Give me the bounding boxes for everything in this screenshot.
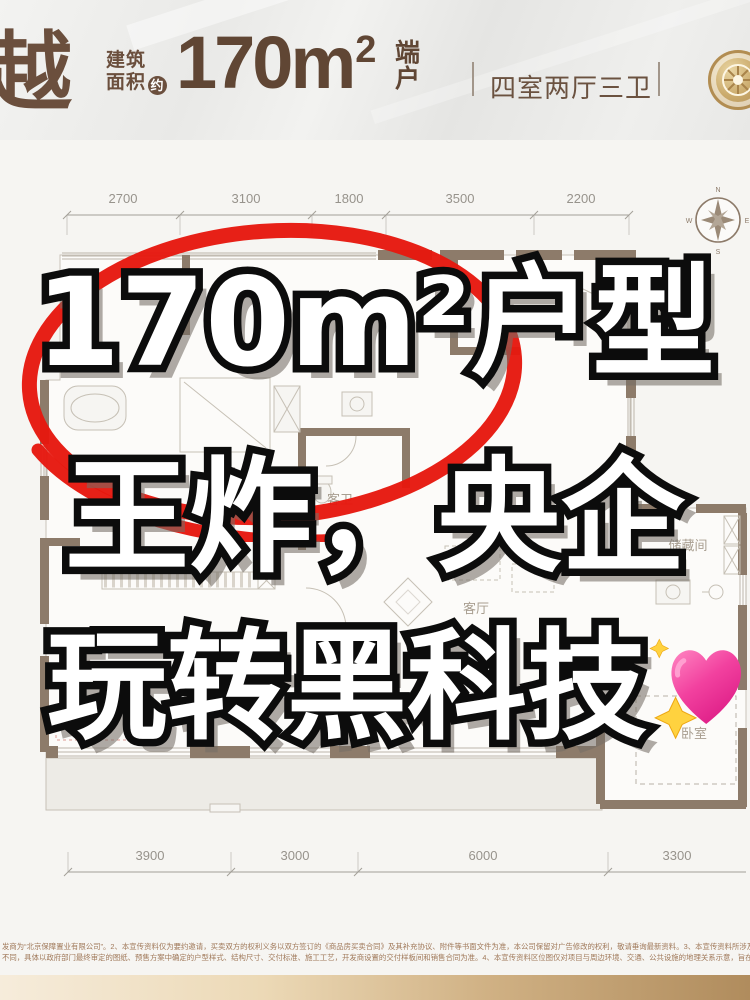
brand-character: 越 [0, 30, 72, 116]
compass-e: E [745, 218, 750, 225]
compass-icon: N S E W [686, 187, 750, 256]
layout-description: 四室两厅三卫 [488, 68, 654, 105]
sparkling-heart-icon [645, 630, 747, 773]
area-label-line1: 建筑 [106, 50, 167, 72]
balcony [46, 758, 602, 812]
headline-line3: 玩转黑科技 玩转黑科技 [0, 616, 694, 760]
divider-line [472, 62, 474, 96]
bottom-dimension-line [64, 852, 746, 876]
compass-n: N [715, 187, 720, 194]
dim-top-5: 2200 [567, 191, 596, 206]
dim-bottom-4: 3300 [663, 848, 692, 863]
header-banner: 越 建筑 面积约 170m2 端 户 四室两厅三卫 [0, 0, 750, 140]
seal-star-icon [716, 58, 750, 102]
divider-line [658, 62, 660, 96]
room-label-living: 客厅 [463, 601, 489, 616]
unit-type-suffix: 端 户 [395, 40, 420, 92]
disclaimer-line2: 不同，具体以政府部门最终审定的图纸、预售方案中确定的户型样式、结构尺寸、交付标准… [2, 953, 750, 964]
compass-w: W [686, 218, 693, 225]
area-label-line2: 面积 [106, 72, 146, 93]
area-label: 建筑 面积约 [106, 50, 167, 95]
disclaimer-line1: 发商为“北京保障置业有限公司”。2、本宣传资料仅为要约邀请，买卖双方的权利义务以… [2, 942, 750, 953]
dim-bottom-1: 3900 [136, 848, 165, 863]
approx-badge: 约 [148, 76, 167, 95]
dim-bottom-3: 6000 [469, 848, 498, 863]
headline-line2: 王炸，央企 王炸，央企 [0, 444, 750, 593]
header-streak [371, 0, 750, 124]
footer-gradient-band [0, 975, 750, 1000]
dim-top-3: 1800 [335, 191, 364, 206]
area-superscript: 2 [355, 29, 376, 71]
top-dimension-line [63, 211, 633, 235]
dim-top-2: 3100 [232, 191, 261, 206]
dim-top-1: 2700 [109, 191, 138, 206]
headline-line1: 170m²户型 170m²户型 [0, 250, 750, 396]
dim-top-4: 3500 [446, 191, 475, 206]
disclaimer-text: 发商为“北京保障置业有限公司”。2、本宣传资料仅为要约邀请，买卖双方的权利义务以… [2, 942, 750, 963]
dim-bottom-2: 3000 [281, 848, 310, 863]
gold-seal-logo [708, 50, 750, 110]
area-value: 170m2 [176, 26, 376, 100]
